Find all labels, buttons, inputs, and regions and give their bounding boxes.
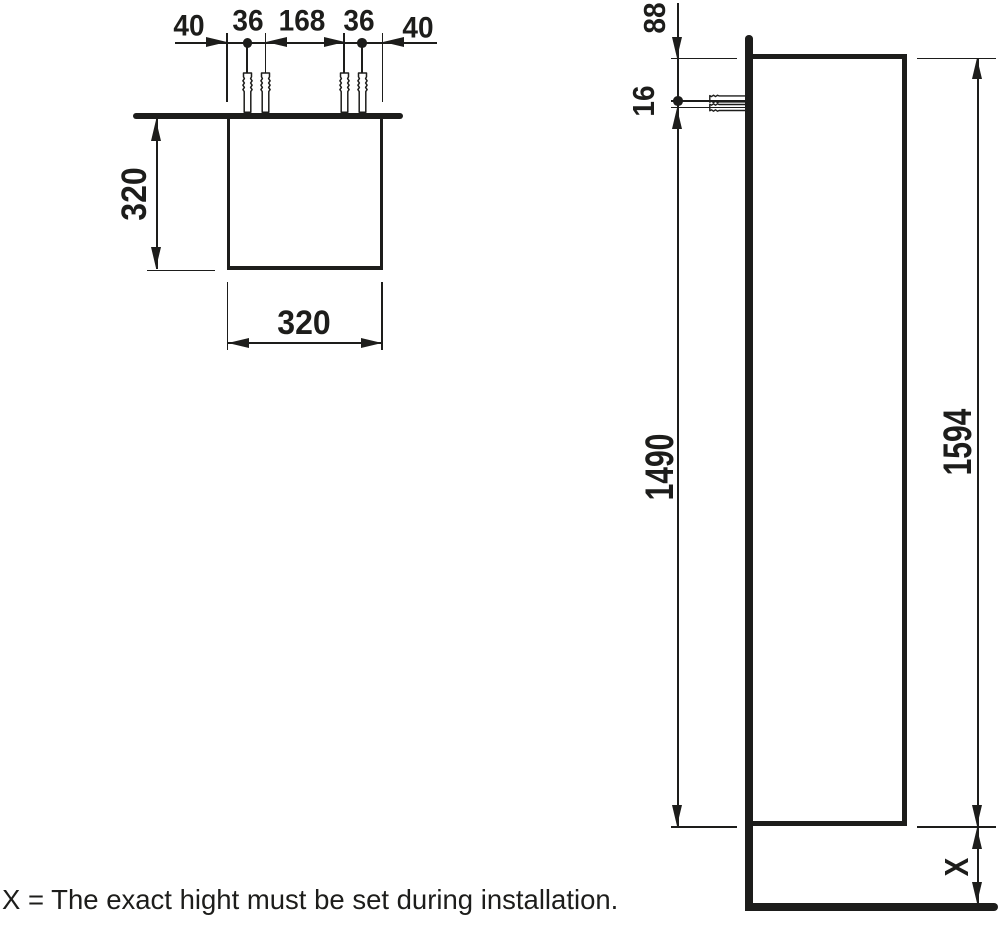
wall-plug-icon — [338, 72, 351, 113]
dim-label-x: X — [940, 858, 974, 877]
dim-label-depth-320: 320 — [116, 167, 151, 220]
dimension-dot — [243, 38, 253, 48]
dimension-arrow — [151, 120, 161, 141]
floor-line — [745, 903, 998, 911]
dim-label-36-left: 36 — [232, 6, 263, 36]
extension-line — [671, 826, 737, 828]
extension-line — [917, 58, 996, 60]
dim-label-36-right: 36 — [343, 6, 374, 36]
dimension-line — [977, 59, 979, 903]
dim-label-40-left: 40 — [173, 11, 204, 41]
dimension-arrow — [383, 37, 404, 47]
dim-label-width-320: 320 — [277, 304, 330, 338]
note-text: X = The exact hight must be set during i… — [2, 884, 618, 916]
cabinet-top-edge — [753, 54, 907, 59]
dimension-line — [156, 119, 158, 269]
dim-label-1490: 1490 — [641, 433, 681, 500]
dimension-arrow — [972, 805, 982, 826]
wall-plug-icon — [708, 95, 749, 113]
dimension-dot — [357, 38, 367, 48]
dim-label-88: 88 — [640, 2, 671, 33]
wall-line-side — [745, 35, 753, 911]
cabinet-outline-plan — [227, 119, 384, 270]
dimension-line — [228, 342, 382, 344]
dimension-arrow — [972, 58, 982, 79]
dim-label-1594: 1594 — [939, 409, 979, 476]
extension-line — [917, 826, 996, 828]
dimension-arrow — [151, 247, 161, 268]
installation-drawing: 40 36 168 36 40 320 320 — [0, 0, 1000, 931]
extension-line — [147, 270, 215, 272]
cabinet-bottom-edge — [753, 821, 907, 826]
dimension-arrow — [972, 882, 982, 903]
dimension-arrow — [672, 108, 682, 129]
dim-label-16: 16 — [629, 85, 660, 116]
dimension-arrow — [972, 828, 982, 849]
dimension-arrow — [206, 37, 227, 47]
dimension-arrow — [266, 37, 287, 47]
dimension-arrow — [672, 805, 682, 826]
dim-label-168: 168 — [279, 6, 326, 36]
dimension-arrow — [324, 37, 345, 47]
dimension-dot — [673, 96, 683, 106]
dimension-arrow — [361, 338, 382, 348]
wall-plug-icon — [356, 72, 369, 113]
wall-plug-icon — [259, 72, 272, 113]
wall-plug-icon — [241, 72, 254, 113]
dim-label-40-right: 40 — [402, 13, 433, 43]
cabinet-front-edge — [902, 54, 907, 826]
dimension-arrow — [228, 338, 249, 348]
dimension-arrow — [672, 37, 682, 58]
